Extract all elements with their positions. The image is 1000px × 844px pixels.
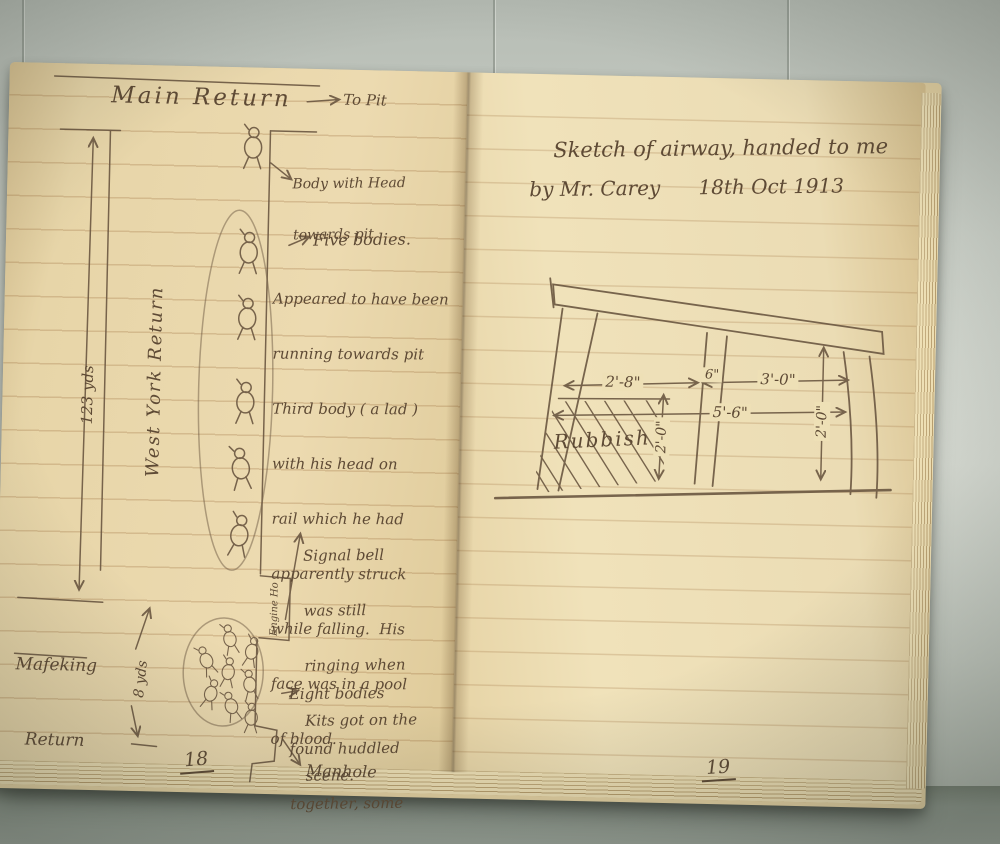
note-line: Signal bell (303, 545, 415, 565)
dimension-2ft0-middle: 2'-0" (653, 417, 670, 456)
manhole-label: Manhole (306, 761, 377, 782)
page-number-19: 19 (700, 755, 736, 782)
heading-line-2: by Mr. Carey 18th Oct 1913 (529, 173, 844, 201)
dimension-5ft6: 5'-6" (709, 403, 751, 422)
note-line: together, some (290, 793, 440, 814)
distance-123yds-label: 123 yds (78, 365, 97, 425)
west-york-return-label: West York Return (142, 285, 167, 477)
note-line: Third body ( a lad ) (272, 400, 448, 420)
main-return-label: Main Return (111, 82, 292, 112)
note-line: Body with Head (292, 175, 406, 193)
open-notebook: Main Return To Pit Body with Head toward… (0, 62, 942, 809)
note-line: was still (304, 600, 416, 620)
note-line: with his head on (272, 455, 448, 475)
note-line: found huddled (289, 738, 439, 759)
heading-line-1: Sketch of airway, handed to me (553, 134, 888, 162)
note-line: Appeared to have been (273, 290, 449, 310)
rubbish-label: Rubbish (553, 425, 651, 454)
airway-sketch (495, 277, 895, 510)
page-number-18: 18 (178, 747, 214, 775)
note-line: Return (8, 727, 101, 754)
top-body-figure (243, 124, 292, 179)
dimension-3ft0: 3'-0" (757, 370, 799, 389)
dimension-2ft8: 2'-8" (602, 373, 644, 392)
photo-of-open-notebook: Main Return To Pit Body with Head toward… (0, 0, 1000, 844)
five-bodies-title: Five bodies. (313, 229, 411, 249)
dimension-6in: 6" (702, 367, 723, 382)
dimension-2ft0-right: 2'-0" (814, 402, 831, 441)
eight-bodies-note: Eight bodies found huddled together, som… (288, 647, 442, 844)
distance-measure-123yds (79, 138, 93, 590)
to-pit-label: To Pit (343, 91, 387, 110)
note-line: running towards pit (273, 345, 449, 365)
engine-house-label: Engine Ho (269, 582, 281, 636)
note-line: Eight bodies (289, 683, 439, 704)
note-line: Mafeking (10, 652, 103, 679)
mafeking-return-label: Mafeking Return (7, 602, 104, 804)
